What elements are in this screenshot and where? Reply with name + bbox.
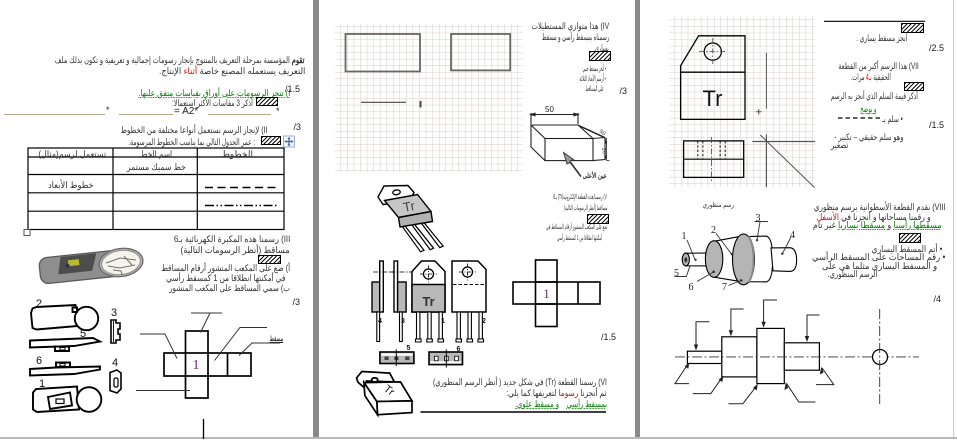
svg-text:1: 1 xyxy=(543,286,550,301)
svg-text:Tr: Tr xyxy=(422,294,434,309)
svg-text:2: 2 xyxy=(482,318,486,325)
svg-text:4: 4 xyxy=(790,230,795,241)
svg-text:1: 1 xyxy=(682,231,687,242)
svg-text:3: 3 xyxy=(401,318,405,325)
svg-text:1: 1 xyxy=(193,358,200,373)
svg-text:20: 20 xyxy=(600,147,607,154)
svg-text:2: 2 xyxy=(711,225,716,236)
svg-text:7: 7 xyxy=(722,282,727,293)
svg-text:5: 5 xyxy=(674,268,679,279)
svg-text:3: 3 xyxy=(756,213,761,224)
svg-text:1: 1 xyxy=(441,318,445,325)
svg-text:4: 4 xyxy=(378,318,382,325)
svg-text:Tr: Tr xyxy=(703,86,723,111)
svg-text:5: 5 xyxy=(407,345,411,352)
svg-text:6: 6 xyxy=(689,282,694,293)
svg-text:50: 50 xyxy=(598,129,607,137)
